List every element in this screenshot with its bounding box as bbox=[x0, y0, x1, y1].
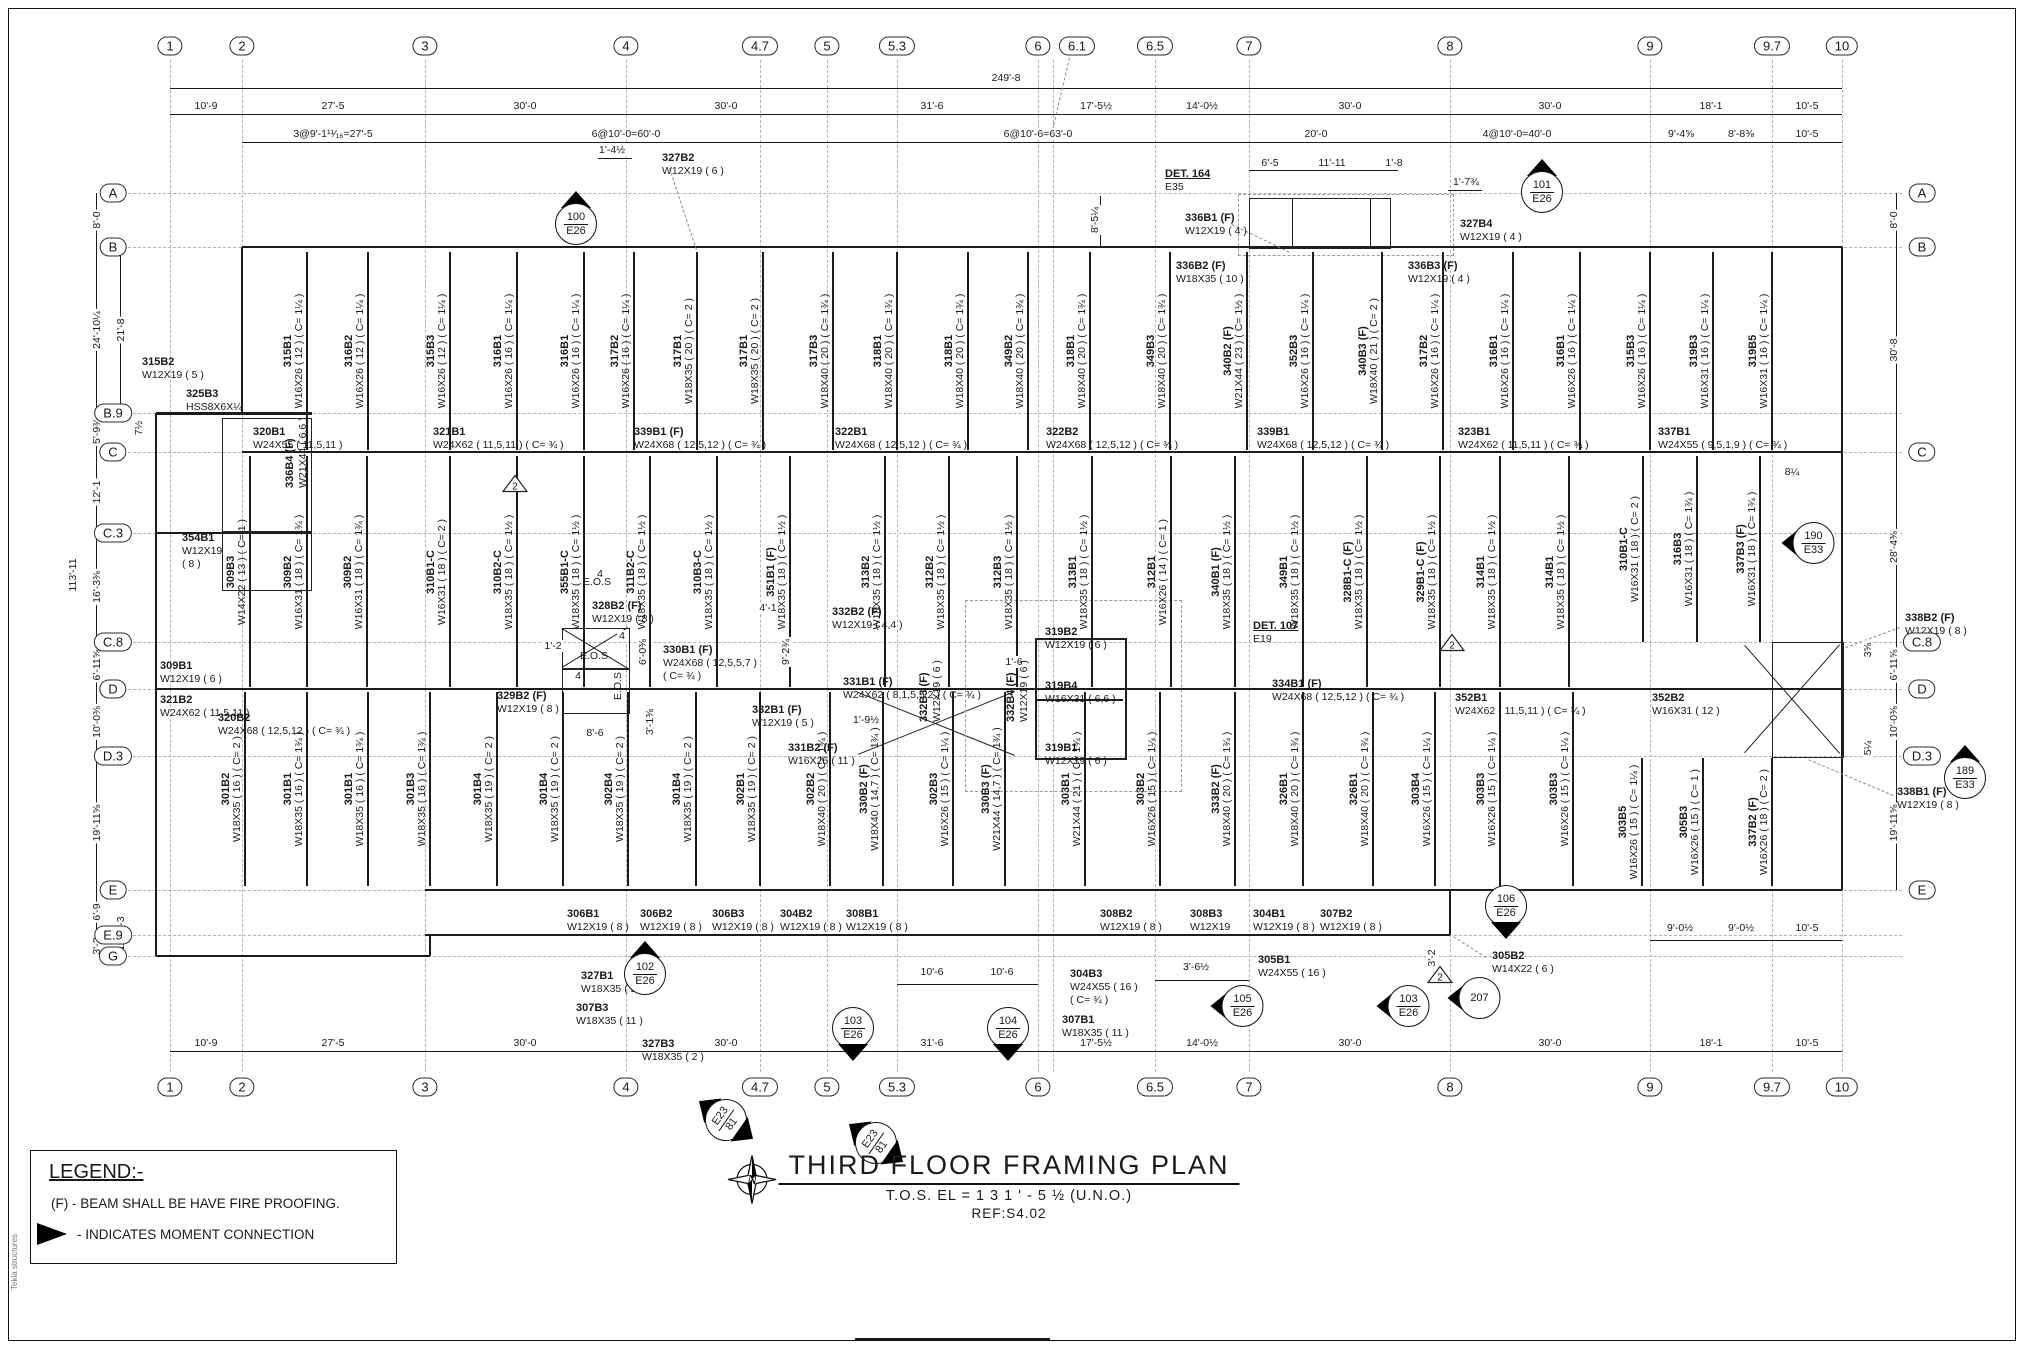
plan-line bbox=[1449, 890, 1451, 935]
callout: 327B4W12X19 ( 4 ) bbox=[1460, 218, 1522, 244]
dim-label: 30'-0 bbox=[1536, 100, 1563, 112]
svg-text:2: 2 bbox=[1449, 641, 1455, 652]
beam-label: 340B3 (F)W18X40 ( 21 ) ( C= 2 ) bbox=[1357, 298, 1381, 404]
callout: 336B1 (F)W12X19 ( 4 ) bbox=[1185, 212, 1247, 238]
beam-label: 316B1W16X26 ( 16 ) ( C= 1¼ ) bbox=[1488, 294, 1512, 409]
plan-line bbox=[897, 984, 1038, 985]
beam-label: 317B3W18X40 ( 20 ) ( C= 1¾ ) bbox=[808, 294, 832, 409]
callout: 332B3 (F)W12X19 ( 6 ) bbox=[918, 660, 944, 722]
callout: E.O.S bbox=[583, 576, 611, 589]
grid-bubble: B.9 bbox=[94, 404, 132, 423]
grid-bubble: 6.5 bbox=[1137, 1078, 1173, 1097]
dim-label: 6'-0⅜ bbox=[637, 637, 649, 667]
beam-label: 302B3W16X26 ( 15 ) ( C= 1¼ ) bbox=[928, 732, 952, 847]
grid-bubble: G bbox=[99, 947, 127, 966]
dim-label: 31'-6 bbox=[918, 100, 945, 112]
beam-label: 349B3W18X40 ( 20 ) ( C= 1¾ ) bbox=[1145, 294, 1169, 409]
beam-line bbox=[1512, 252, 1513, 450]
grid-bubble: 6.5 bbox=[1137, 37, 1173, 56]
grid-bubble: 2 bbox=[229, 37, 254, 56]
section-marker: 103E26 bbox=[832, 1007, 874, 1061]
beam-line bbox=[1712, 252, 1713, 450]
callout: 332B2 (F)W12X19 ( 4,4 ) bbox=[832, 606, 903, 632]
beam-label: 310B1-CW16X31 ( 18 ) ( C= 2 ) bbox=[425, 519, 449, 625]
callout: 319B1W12X19 ( 6 ) bbox=[1045, 742, 1107, 768]
callout: 321B1W24X62 ( 11,5,11 ) ( C= ¾ ) bbox=[433, 426, 564, 452]
plan-line bbox=[855, 1338, 1050, 1341]
dim-label: 1'-2 bbox=[542, 640, 563, 652]
beam-label: 309B3W14X22 ( 13 ) ( C= 1 ) bbox=[225, 519, 249, 625]
grid-bubble: D bbox=[1908, 680, 1935, 699]
callout: 332B4 (F)W12X19 ( 6 ) bbox=[1005, 660, 1031, 722]
plan-line bbox=[429, 935, 431, 956]
dim-label: 10'-0⅜ bbox=[1888, 704, 1900, 740]
dim-label: 9'-0½ bbox=[1665, 922, 1695, 934]
revision-triangle-icon: 2 bbox=[502, 474, 528, 499]
beam-line bbox=[1641, 758, 1642, 886]
callout: 337B1W24X55 ( 9,5,1,9 ) ( C= ¾ ) bbox=[1658, 426, 1787, 452]
beam-label: 315B3W16X26 ( 16 ) ( C= 1¼ ) bbox=[1625, 294, 1649, 409]
grid-bubble: 5 bbox=[814, 37, 839, 56]
dim-label: 17'-5½ bbox=[1078, 100, 1114, 112]
beam-line bbox=[449, 252, 450, 450]
beam-label: 309B2W16X31 ( 18 ) ( C= 1¾ ) bbox=[342, 514, 366, 629]
section-marker: 102E26 bbox=[624, 941, 666, 995]
dim-label: 19'-11⅝ bbox=[91, 803, 103, 844]
plan-line bbox=[1249, 170, 1398, 171]
callout: 352B2W16X31 ( 12 ) bbox=[1652, 692, 1720, 718]
plan-line bbox=[155, 413, 158, 956]
grid-bubble: C bbox=[99, 443, 126, 462]
dim-label: 6'-11⅝ bbox=[91, 648, 103, 683]
beam-label: 310B2-CW18X35 ( 18 ) ( C= 1½ ) bbox=[492, 514, 516, 629]
beam-label: 302B1W18X35 ( 19 ) ( C= 2 ) bbox=[735, 736, 759, 842]
title-block: THIRD FLOOR FRAMING PLAN T.O.S. EL = 1 3… bbox=[778, 1150, 1239, 1221]
beam-line bbox=[1302, 692, 1303, 886]
beam-label: 314B1W18X35 ( 18 ) ( C= 1½ ) bbox=[1475, 514, 1499, 629]
grid-bubble: 4.7 bbox=[742, 1078, 778, 1097]
dim-label: 5¼ bbox=[1862, 739, 1874, 758]
beam-label: 301B3W18X35 ( 16 ) ( C= 1¾ ) bbox=[405, 732, 429, 847]
grid-bubble: 9 bbox=[1637, 37, 1662, 56]
callout: 307B1W18X35 ( 11 ) bbox=[1062, 1014, 1129, 1040]
callout: 322B1W24X68 ( 12,5,12 ) ( C= ¾ ) bbox=[835, 426, 967, 452]
dim-label: 4 bbox=[573, 670, 583, 682]
beam-line bbox=[882, 692, 883, 886]
beam-line bbox=[449, 456, 450, 687]
callout: 352B1W24X62 ( 11,5,11 ) ( C= ¾ ) bbox=[1455, 692, 1586, 718]
plan-box bbox=[1249, 198, 1391, 249]
beam-line bbox=[1702, 758, 1703, 886]
beam-line bbox=[1381, 252, 1382, 450]
beam-label: 301B1W18X35 ( 16 ) ( C= 1¾ ) bbox=[282, 732, 306, 847]
beam-line bbox=[1771, 758, 1772, 886]
callout: 334B1 (F)W24X68 ( 12,5,12 ) ( C= ¾ ) bbox=[1272, 678, 1404, 704]
beam-line bbox=[1568, 456, 1569, 687]
grid-bubble: 5.3 bbox=[879, 1078, 915, 1097]
beam-label: 318B1W18X40 ( 20 ) ( C= 1¾ ) bbox=[943, 294, 967, 409]
grid-bubble: 3 bbox=[412, 37, 437, 56]
beam-line bbox=[583, 252, 584, 450]
section-marker: 106E26 bbox=[1485, 885, 1527, 939]
dim-label: 1'-4½ bbox=[597, 144, 627, 156]
legend-heading: LEGEND:- bbox=[49, 1161, 396, 1184]
callout: 306B3W12X19 ( 8 ) bbox=[712, 908, 774, 934]
dim-label: 8'-0 bbox=[1888, 209, 1900, 230]
beam-line bbox=[948, 456, 949, 687]
grid-bubble: 5.3 bbox=[879, 37, 915, 56]
callout: 305B1W24X55 ( 16 ) bbox=[1258, 954, 1326, 980]
callout: 305B2W14X22 ( 6 ) bbox=[1492, 950, 1554, 976]
beam-line bbox=[762, 252, 763, 450]
plan-line bbox=[170, 88, 1842, 89]
grid-bubble: 4 bbox=[613, 37, 638, 56]
beam-line bbox=[1649, 252, 1650, 450]
dim-label: 16'-3⅜ bbox=[91, 569, 103, 605]
beam-label: 303B2W16X26 ( 15 ) ( C= 1¼ ) bbox=[1135, 732, 1159, 847]
dim-label: 10'-5 bbox=[1793, 922, 1820, 934]
beam-line bbox=[832, 252, 833, 450]
beam-line bbox=[1246, 252, 1247, 450]
callout: 304B1W12X19 ( 8 ) bbox=[1253, 908, 1315, 934]
dim-label: 30'-0 bbox=[712, 100, 739, 112]
section-marker: 103E26 bbox=[1377, 985, 1430, 1027]
section-marker: 189E33 bbox=[1944, 745, 1986, 799]
grid-bubble: E.9 bbox=[94, 926, 132, 945]
beam-label: 318B1W18X40 ( 20 ) ( C= 1¾ ) bbox=[1065, 294, 1089, 409]
beam-label: 316B2W16X26 ( 12 ) ( C= 1¼ ) bbox=[343, 294, 367, 409]
grid-bubble: 10 bbox=[1826, 37, 1858, 56]
beam-label: 316B3W16X31 ( 18 ) ( C= 1¾ ) bbox=[1672, 492, 1696, 607]
section-marker: 100E26 bbox=[555, 191, 597, 245]
beam-label: 333B2 (F)W18X40 ( 20 ) ( C= 1¾ ) bbox=[1210, 732, 1234, 847]
dim-label: 30'-0 bbox=[712, 1037, 739, 1049]
beam-label: 316B1W16X26 ( 16 ) ( C= 1¼ ) bbox=[1555, 294, 1579, 409]
beam-line bbox=[1091, 456, 1092, 687]
dim-label: 30'-0 bbox=[1536, 1037, 1563, 1049]
beam-label: 315B3W16X26 ( 12 ) ( C= 1¼ ) bbox=[425, 294, 449, 409]
grid-bubble: 7 bbox=[1236, 37, 1261, 56]
beam-label: 349B2W18X40 ( 20 ) ( C= 1¾ ) bbox=[1003, 294, 1027, 409]
callout: 339B1W24X68 ( 12,5,12 ) ( C= ¾ ) bbox=[1257, 426, 1389, 452]
beam-label: 317B2W16X26 ( 16 ) ( C= 1¼ ) bbox=[1418, 294, 1442, 409]
dim-label: 14'-0½ bbox=[1184, 1037, 1220, 1049]
dim-label: 9'-0½ bbox=[1726, 922, 1756, 934]
grid-bubble: 9 bbox=[1637, 1078, 1662, 1097]
callout: 330B1 (F)W24X68 ( 12,5,5,7 )( C= ¾ ) bbox=[663, 644, 757, 683]
beam-label: 302B4W18X35 ( 19 ) ( C= 2 ) bbox=[603, 736, 627, 842]
beam-line bbox=[952, 692, 953, 886]
beam-label: 309B2W16X31 ( 18 ) ( C= 1¾ ) bbox=[282, 514, 306, 629]
legend-fireproof-note: (F) - BEAM SHALL BE HAVE FIRE PROOFING. bbox=[51, 1196, 396, 1211]
beam-label: 340B1 (F)W18X35 ( 18 ) ( C= 1½ ) bbox=[1210, 514, 1234, 629]
beam-label: 315B1W16X26 ( 12 ) ( C= 1¼ ) bbox=[282, 294, 306, 409]
plan-line bbox=[1841, 247, 1844, 890]
dim-label: 8'-8⅜ bbox=[1726, 128, 1756, 140]
beam-line bbox=[1312, 252, 1313, 450]
beam-label: 310B1-CW16X31 ( 18 ) ( C= 2 ) bbox=[1618, 496, 1642, 602]
beam-line bbox=[696, 252, 697, 450]
dim-label: 28'-4⅜ bbox=[1888, 529, 1900, 565]
plan-box bbox=[1772, 642, 1844, 758]
beam-label: 317B2W16X26 ( 16 ) ( C= 1¼ ) bbox=[609, 294, 633, 409]
beam-label: 305B3W16X26 ( 15 ) ( C= 1 ) bbox=[1678, 769, 1702, 875]
legend-box: LEGEND:- (F) - BEAM SHALL BE HAVE FIRE P… bbox=[30, 1150, 397, 1264]
beam-line bbox=[1434, 692, 1435, 886]
grid-bubble: 7 bbox=[1236, 1078, 1261, 1097]
dim-label: 1'-8 bbox=[1383, 157, 1404, 169]
beam-line bbox=[366, 456, 367, 687]
grid-bubble: C bbox=[1908, 443, 1935, 462]
plan-line bbox=[156, 955, 430, 958]
callout: 306B1W12X19 ( 8 ) bbox=[567, 908, 629, 934]
plan-elevation-note: T.O.S. EL = 1 3 1 ' - 5 ½ (U.N.O.) bbox=[778, 1188, 1239, 1204]
section-marker: 101E26 bbox=[1521, 159, 1563, 213]
beam-line bbox=[1771, 252, 1772, 450]
dim-label: 31'-6 bbox=[918, 1037, 945, 1049]
grid-bubble: D.3 bbox=[94, 747, 132, 766]
grid-bubble: A bbox=[1909, 184, 1936, 203]
beam-line bbox=[1027, 252, 1028, 450]
beam-label: 301B1W18X35 ( 16 ) ( C= 1¾ ) bbox=[343, 732, 367, 847]
callout: 307B2W12X19 ( 8 ) bbox=[1320, 908, 1382, 934]
beam-line bbox=[1759, 456, 1760, 642]
callout: E.O.S bbox=[580, 650, 608, 663]
beam-line bbox=[1234, 692, 1235, 886]
column-grid-line bbox=[1650, 60, 1651, 1072]
callout: 323B1W24X62 ( 11,5,11 ) ( C= ¾ ) bbox=[1458, 426, 1589, 452]
beam-line bbox=[967, 252, 968, 450]
dim-label: 12'-1 bbox=[91, 478, 103, 505]
beam-line bbox=[1372, 692, 1373, 886]
beam-line bbox=[1579, 252, 1580, 450]
grid-bubble: D bbox=[99, 680, 126, 699]
plan-line bbox=[242, 246, 1842, 249]
callout: 339B1 (F)W24X68 ( 12,5,12 ) ( C= ¾ ) bbox=[634, 426, 766, 452]
dim-label: 3⅝ bbox=[1862, 641, 1874, 660]
grid-bubble: 8 bbox=[1437, 37, 1462, 56]
grid-bubble: A bbox=[100, 184, 127, 203]
beam-label: 326B1W18X40 ( 20 ) ( C= 1¾ ) bbox=[1348, 732, 1372, 847]
beam-line bbox=[695, 692, 696, 886]
dim-label: 30'-0 bbox=[511, 100, 538, 112]
grid-bubble: B bbox=[100, 238, 127, 257]
beam-label: 337B3 (F)W16X31 ( 18 ) ( C= 1¾ ) bbox=[1735, 492, 1759, 607]
legend-moment-item: - INDICATES MOMENT CONNECTION bbox=[37, 1223, 396, 1245]
dim-label: 4 bbox=[617, 630, 627, 642]
svg-text:N: N bbox=[746, 1173, 758, 1189]
dim-label: 30'-0 bbox=[511, 1037, 538, 1049]
callout: 328B2 (F)W12X19 ( 8 ) bbox=[592, 600, 654, 626]
grid-bubble: 1 bbox=[157, 37, 182, 56]
beam-line bbox=[1499, 692, 1500, 886]
beam-line bbox=[367, 692, 368, 886]
beam-label: 318B1W18X40 ( 20 ) ( C= 1¾ ) bbox=[872, 294, 896, 409]
grid-bubble: 6 bbox=[1025, 1078, 1050, 1097]
beam-label: 317B1W18X35 ( 20 ) ( C= 2 ) bbox=[738, 298, 762, 404]
dim-label: 9'-4⅝ bbox=[1666, 128, 1696, 140]
section-marker: 104E26 bbox=[987, 1007, 1029, 1061]
beam-label: 312B3W18X35 ( 18 ) ( C= 1½ ) bbox=[992, 514, 1016, 629]
callout: 325B3HSS8X6X¼ bbox=[186, 388, 242, 414]
beam-line bbox=[1169, 252, 1170, 450]
beam-line bbox=[1366, 456, 1367, 687]
dim-label: 10'-6 bbox=[918, 966, 945, 978]
dim-label: 6'-9 bbox=[91, 901, 103, 922]
beam-label: 303B3W16X26 ( 15 ) ( C= 1¼ ) bbox=[1475, 732, 1499, 847]
beam-label: 301B2W18X35 ( 16 ) ( C= 2 ) bbox=[220, 736, 244, 842]
beam-line bbox=[1089, 252, 1090, 450]
beam-label: 319B3W16X31 ( 16 ) ( C= 1¼ ) bbox=[1688, 294, 1712, 409]
column-grid-line bbox=[1038, 60, 1039, 1072]
svg-text:2: 2 bbox=[1437, 973, 1443, 984]
dim-label: 30'-8 bbox=[1888, 336, 1900, 363]
beam-label: 301B4W18X35 ( 19 ) ( C= 2 ) bbox=[472, 736, 496, 842]
beam-line bbox=[1016, 456, 1017, 687]
beam-label: 330B3 (F)W21X44 ( 14,7 ) ( C= 1¾ ) bbox=[980, 727, 1004, 850]
dim-label: 4@10'-0=40'-0 bbox=[1481, 128, 1554, 140]
beam-label: 314B1W18X35 ( 18 ) ( C= 1½ ) bbox=[1544, 514, 1568, 629]
beam-label: 355B1-CW18X35 ( 18 ) ( C= 1½ ) bbox=[559, 514, 583, 629]
beam-label: 328B1-C (F)W18X35 ( 18 ) ( C= 1½ ) bbox=[1342, 514, 1366, 629]
callout: 327B2W12X19 ( 6 ) bbox=[662, 152, 724, 178]
beam-label: 352B3W16X26 ( 16 ) ( C= 1¼ ) bbox=[1288, 294, 1312, 409]
callout: 308B2W12X19 ( 8 ) bbox=[1100, 908, 1162, 934]
dim-label: 3@9'-1¹¹⁄₁₆=27'-5 bbox=[291, 128, 374, 140]
callout: DET. 107E19 bbox=[1253, 620, 1298, 646]
beam-line bbox=[884, 456, 885, 687]
legend-moment-note: - INDICATES MOMENT CONNECTION bbox=[77, 1227, 314, 1242]
callout: 336B3 (F)W12X19 ( 4 ) bbox=[1408, 260, 1470, 286]
beam-label: 319B5W16X31 ( 16 ) ( C= 1¼ ) bbox=[1747, 294, 1771, 409]
callout: 336B2 (F)W18X35 ( 10 ) bbox=[1176, 260, 1244, 286]
beam-label: 303B5W16X26 ( 15 ) ( C= 1¼ ) bbox=[1617, 765, 1641, 880]
dim-label: 7½ bbox=[133, 419, 145, 438]
dim-label: 30'-0 bbox=[1336, 100, 1363, 112]
beam-label: 329B1-C (F)W18X35 ( 18 ) ( C= 1½ ) bbox=[1415, 514, 1439, 629]
grid-bubble: 6.1 bbox=[1059, 37, 1095, 56]
dim-label: 24'-10¼ bbox=[91, 309, 103, 351]
beam-line bbox=[1499, 456, 1500, 687]
dim-label: 1'-9½ bbox=[851, 714, 881, 726]
beam-label: 337B2 (F)W16X26 ( 18 ) ( C= 2 ) bbox=[1747, 769, 1771, 875]
callout: E.O.S bbox=[612, 672, 625, 700]
row-grid-line bbox=[128, 413, 1902, 414]
moment-connection-icon bbox=[37, 1223, 67, 1245]
grid-bubble: 2 bbox=[229, 1078, 254, 1097]
column-grid-line bbox=[1053, 60, 1054, 1072]
dim-label: 8'-5¼ bbox=[1089, 205, 1101, 235]
grid-bubble: 6 bbox=[1025, 37, 1050, 56]
plan-line bbox=[242, 142, 1842, 143]
dim-label: 8¼ bbox=[1783, 466, 1802, 478]
plan-line bbox=[598, 158, 632, 159]
plan-line bbox=[425, 889, 1842, 891]
callout: 332B1 (F)W12X19 ( 5 ) bbox=[752, 704, 814, 730]
beam-label: 316B1W16X26 ( 16 ) ( C= 1¼ ) bbox=[492, 294, 516, 409]
section-marker: 207 bbox=[1448, 977, 1501, 1019]
dim-label: 9'-2¾ bbox=[780, 637, 792, 667]
dim-label: 21'-8 bbox=[115, 316, 127, 343]
dim-label: 249'-8 bbox=[990, 72, 1023, 84]
callout: 329B2 (F)W12X19 ( 8 ) bbox=[497, 690, 559, 716]
north-arrow-icon: N bbox=[726, 1154, 778, 1211]
beam-label: 303B4W16X26 ( 15 ) ( C= 1¼ ) bbox=[1410, 732, 1434, 847]
beam-label: 301B4W18X35 ( 19 ) ( C= 2 ) bbox=[671, 736, 695, 842]
beam-label: 316B1W16X26 ( 16 ) ( C= 1¼ ) bbox=[559, 294, 583, 409]
grid-bubble: C.3 bbox=[94, 524, 132, 543]
callout: 354B1W12X19( 8 ) bbox=[182, 532, 222, 571]
dim-label: 10'-5 bbox=[1793, 100, 1820, 112]
callout: 320B2W24X68 ( 12,5,12 ) ( C= ¾ ) bbox=[218, 712, 350, 738]
callout: 306B2W12X19 ( 8 ) bbox=[640, 908, 702, 934]
beam-line bbox=[1696, 456, 1697, 642]
callout: 319B4W16X31 ( 6,6 ) bbox=[1045, 680, 1116, 706]
plan-reference: REF:S4.02 bbox=[778, 1206, 1239, 1221]
grid-bubble: E bbox=[100, 881, 127, 900]
grid-bubble: C.8 bbox=[94, 633, 132, 652]
beam-label: 310B3-CW18X35 ( 18 ) ( C= 1½ ) bbox=[692, 514, 716, 629]
beam-label: 340B2 (F)W21X44 ( 23 ) ( C= 1½ ) bbox=[1222, 294, 1246, 409]
grid-bubble: 5 bbox=[814, 1078, 839, 1097]
beam-label: 303B3W16X26 ( 15 ) ( C= 1¼ ) bbox=[1548, 732, 1572, 847]
beam-label: 317B1W18X35 ( 20 ) ( C= 2 ) bbox=[672, 298, 696, 404]
plan-line bbox=[1448, 190, 1482, 191]
callout: 327B3W18X35 ( 2 ) bbox=[642, 1038, 704, 1064]
callout: 331B2 (F)W16X26 ( 11 ) bbox=[788, 742, 855, 768]
beam-label: 326B1W18X40 ( 20 ) ( C= 1¾ ) bbox=[1278, 732, 1302, 847]
beam-line bbox=[1302, 456, 1303, 687]
beam-line bbox=[1642, 456, 1643, 642]
beam-label: 312B1W16X26 ( 14 ) ( C= 1 ) bbox=[1146, 519, 1170, 625]
revision-triangle-icon: 2 bbox=[1439, 633, 1465, 658]
callout: 319B2W12X19 ( 6 ) bbox=[1045, 626, 1107, 652]
beam-line bbox=[627, 692, 628, 886]
beam-line bbox=[429, 692, 430, 886]
beam-label: 351B1 (F)W18X35 ( 18 ) ( C= 1½ ) bbox=[765, 514, 789, 629]
callout: 308B3W12X19 bbox=[1190, 908, 1230, 934]
dim-label: 18'-1 bbox=[1697, 100, 1724, 112]
callout: 322B2W24X68 ( 12,5,12 ) ( C= ¾ ) bbox=[1046, 426, 1178, 452]
drawing-sheet: 112233444.74.7555.35.3666.16.56.57788999… bbox=[0, 0, 2024, 1349]
beam-line bbox=[1234, 456, 1235, 687]
beam-line bbox=[516, 252, 517, 450]
dim-label: 30'-0 bbox=[1336, 1037, 1363, 1049]
grid-bubble: 4 bbox=[613, 1078, 638, 1097]
beam-line bbox=[367, 252, 368, 450]
grid-bubble: 10 bbox=[1826, 1078, 1858, 1097]
grid-bubble: 9.7 bbox=[1754, 37, 1790, 56]
beam-line bbox=[1159, 692, 1160, 886]
grid-bubble: 9.7 bbox=[1754, 1078, 1790, 1097]
grid-bubble: 3 bbox=[412, 1078, 437, 1097]
dim-label: 14'-0½ bbox=[1184, 100, 1220, 112]
dim-label: 6@10'-6=63'-0 bbox=[1002, 128, 1075, 140]
plan-line bbox=[170, 114, 1842, 115]
section-marker: 105E26 bbox=[1211, 985, 1264, 1027]
grid-bubble: C.8 bbox=[1903, 633, 1941, 652]
dim-label: 3'-6½ bbox=[1181, 961, 1211, 973]
beam-line bbox=[249, 456, 250, 687]
dim-label: 6'-11⅝ bbox=[1888, 648, 1900, 683]
callout: 304B3W24X55 ( 16 )( C= ¾ ) bbox=[1070, 968, 1138, 1007]
plan-line bbox=[1155, 980, 1249, 981]
svg-text:2: 2 bbox=[512, 482, 518, 493]
beam-label: 312B2W18X35 ( 18 ) ( C= 1½ ) bbox=[924, 514, 948, 629]
beam-line bbox=[1572, 692, 1573, 886]
section-marker: 190E33 bbox=[1782, 522, 1835, 564]
beam-label: 301B4W18X35 ( 19 ) ( C= 2 ) bbox=[538, 736, 562, 842]
